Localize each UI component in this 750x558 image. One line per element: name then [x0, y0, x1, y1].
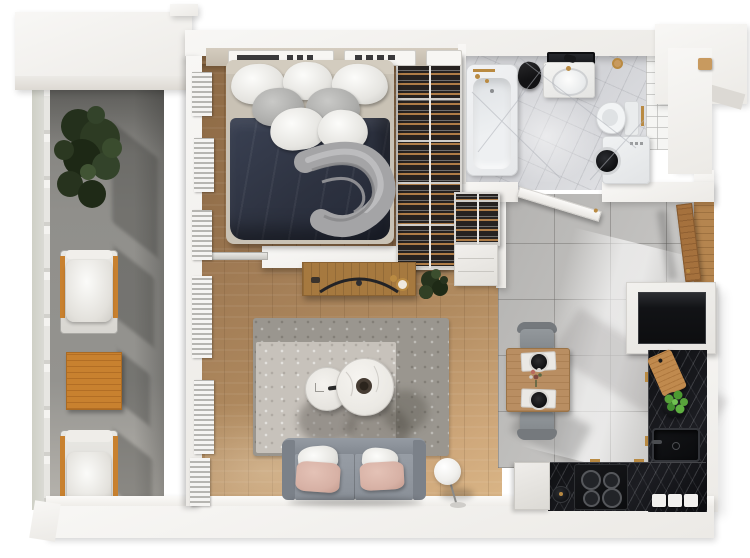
door-handle-brass — [593, 208, 598, 213]
wall-bath-bottom-right — [602, 182, 714, 202]
bed — [226, 60, 394, 244]
burner — [602, 488, 622, 508]
closet-rail — [477, 194, 479, 244]
decor-lines — [315, 383, 324, 392]
sofa-armrest — [282, 440, 295, 500]
dining-chair — [517, 408, 557, 440]
decor-item — [311, 277, 320, 283]
door-handle-brass — [686, 269, 690, 273]
chair-rail — [60, 256, 65, 318]
canister — [684, 494, 698, 507]
canister — [668, 494, 682, 507]
bath-drain — [490, 89, 494, 93]
kettle-knob — [559, 492, 563, 496]
coffee-table-large — [336, 358, 394, 416]
radiator-panel — [194, 380, 214, 454]
chair-back — [517, 429, 557, 440]
sofa-cushion-blush — [295, 461, 341, 494]
chair-back — [66, 430, 112, 442]
toilet-seat — [602, 109, 618, 126]
floor-lamp-base — [450, 502, 466, 508]
closet-rail — [429, 56, 431, 268]
entry-shoe-wardrobe — [454, 192, 500, 246]
wall-top-left-face — [15, 76, 192, 90]
towel-bar-brass — [641, 106, 644, 126]
tv-console — [302, 262, 416, 296]
floor-lamp-globe — [434, 458, 461, 485]
bath-faucet-knob — [485, 79, 489, 83]
burner — [581, 470, 601, 490]
wall-top-tab — [170, 4, 198, 16]
radiator-panel — [190, 458, 210, 506]
balcony-chair — [60, 250, 118, 334]
washer-door — [593, 147, 621, 175]
floor-lamp-shadow — [440, 488, 474, 500]
cabinet-handle-brass — [590, 459, 600, 462]
radiator-panel — [192, 72, 212, 116]
bath-faucet — [473, 69, 495, 72]
dinner-plate — [529, 390, 549, 410]
sofa-armrest — [413, 440, 426, 500]
wall-basket — [698, 58, 712, 70]
decor-candle — [396, 278, 409, 291]
floor-plan — [0, 0, 750, 558]
sink-faucet — [652, 440, 662, 444]
bath-faucet-knob — [475, 74, 480, 79]
counter-end-cabinet — [514, 462, 550, 510]
wardrobe-open-closet — [396, 54, 462, 270]
radiator-panel — [192, 276, 212, 358]
dinner-plate — [529, 352, 549, 372]
chair-rail — [113, 436, 118, 498]
kettle — [552, 486, 570, 503]
balcony-table — [66, 352, 122, 410]
toilet-tank — [624, 101, 639, 136]
canister — [652, 494, 666, 507]
chair-back — [66, 250, 112, 259]
vanity-sink — [552, 68, 588, 96]
chair-cushion — [66, 260, 112, 322]
board-hole — [658, 358, 663, 363]
built-in-appliance-black — [638, 292, 706, 344]
cabinet-handle-brass — [634, 459, 644, 462]
sink-drain — [672, 442, 680, 450]
herb-pot — [662, 392, 687, 417]
entry-cabinet — [454, 244, 498, 286]
kitchen-sink — [652, 428, 700, 462]
window — [426, 50, 462, 66]
burner — [583, 490, 600, 507]
burner — [603, 472, 620, 489]
cabinet-handle-brass — [645, 436, 648, 446]
radiator-panel — [194, 138, 214, 192]
cabinet-handle-brass — [645, 372, 648, 382]
bathtub — [466, 64, 518, 176]
cooktop — [574, 464, 628, 510]
sofa-cushion-blush — [359, 461, 404, 491]
radiator-panel — [192, 210, 212, 260]
chair-rail — [113, 256, 118, 318]
wall-hook-brass — [612, 58, 623, 69]
sofa-shadow — [288, 498, 422, 506]
chair-rail — [60, 436, 65, 498]
sink-faucet-brass — [566, 66, 571, 71]
toilet-bowl — [596, 102, 626, 134]
washer-controls — [630, 142, 644, 145]
sofa — [282, 438, 426, 502]
